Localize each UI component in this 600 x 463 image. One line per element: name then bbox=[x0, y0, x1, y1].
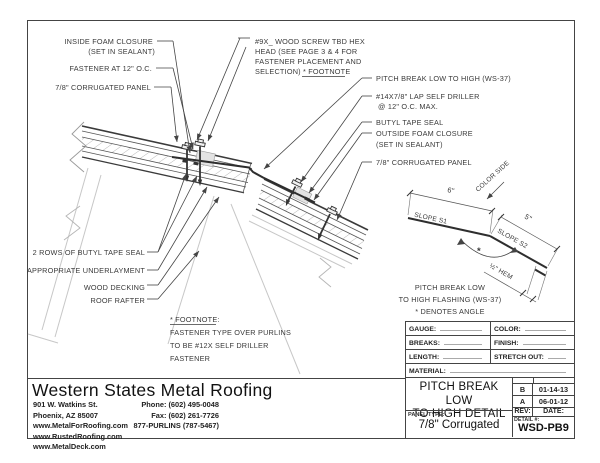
panel-type-value: 7/8" Corrugated bbox=[406, 419, 512, 431]
footnote-line1: FASTENER TYPE OVER PURLINS bbox=[170, 328, 291, 337]
gauge-blank bbox=[440, 329, 482, 331]
label-lap-driller: #14X7/8" LAP SELF DRILLER bbox=[376, 92, 480, 101]
label-wood-screw-footnote: * FOOTNOTE bbox=[303, 67, 350, 76]
revision-a: A bbox=[513, 396, 533, 407]
stretch-out-label: STRETCH OUT: bbox=[494, 354, 544, 361]
flashing-caption-3: * DENOTES ANGLE bbox=[415, 307, 485, 316]
label-roof-rafter: ROOF RAFTER bbox=[91, 296, 146, 305]
label-wood-screw-4: SELECTION) bbox=[255, 67, 301, 76]
label-wood-screw-1: #9X_ WOOD SCREW TBD HEX bbox=[255, 37, 365, 46]
date-label: DATE: bbox=[533, 408, 574, 416]
spec-row-breaks-finish: BREAKS: FINISH: bbox=[406, 336, 574, 350]
label-fastener-12oc: FASTENER AT 12" O.C. bbox=[69, 64, 152, 73]
right-corrugation-hatch bbox=[259, 190, 364, 249]
spec-row-material: MATERIAL: bbox=[406, 364, 574, 378]
label-color-side: COLOR SIDE bbox=[475, 159, 512, 193]
material-blank bbox=[450, 371, 566, 373]
website-3: www.MetalDeck.com bbox=[33, 442, 128, 453]
tollfree-number: 877-PURLINS (787-5467) bbox=[127, 421, 219, 432]
color-blank bbox=[525, 329, 566, 331]
label-corrugated-panel-left: 7/8" CORRUGATED PANEL bbox=[55, 83, 151, 92]
address-line-1: 901 W. Watkins St. bbox=[33, 400, 128, 411]
gauge-label: GAUGE: bbox=[409, 326, 436, 333]
detail-title-line1: PITCH BREAK LOW bbox=[406, 381, 512, 408]
left-break-symbol bbox=[70, 122, 86, 172]
label-inside-foam-closure-2: (SET IN SEALANT) bbox=[88, 47, 155, 56]
label-outside-foam-2: (SET IN SEALANT) bbox=[376, 140, 443, 149]
spec-row-gauge-color: GAUGE: COLOR: bbox=[406, 322, 574, 336]
label-hem: ½" HEM bbox=[488, 262, 514, 282]
revision-strip bbox=[513, 378, 574, 384]
rev-label: REV: bbox=[513, 408, 533, 416]
label-wood-screw-3: FASTENER PLACEMENT AND bbox=[255, 57, 361, 66]
leader-lines bbox=[147, 38, 372, 299]
flashing-caption-1: PITCH BREAK LOW bbox=[415, 283, 485, 292]
label-lap-driller-2: @ 12" O.C. MAX. bbox=[378, 102, 438, 111]
breaks-label: BREAKS: bbox=[409, 340, 440, 347]
label-outside-foam: OUTSIDE FOAM CLOSURE bbox=[376, 129, 473, 138]
material-label: MATERIAL: bbox=[409, 368, 446, 375]
detail-title-cell: PITCH BREAK LOW TO HIGH DETAIL PANEL TYP… bbox=[406, 378, 513, 437]
hem-fold bbox=[535, 270, 546, 276]
finish-label: FINISH: bbox=[494, 340, 519, 347]
revision-a-date: 06-01-12 bbox=[533, 396, 574, 407]
finish-blank bbox=[523, 343, 566, 345]
panel-type-cell: PANEL TYPE: 7/8" Corrugated bbox=[406, 410, 512, 437]
footnote-line3: FASTENER bbox=[170, 354, 210, 363]
phone-number: Phone: (602) 495-0048 bbox=[127, 400, 219, 411]
left-roof-assembly bbox=[70, 122, 252, 193]
drawing-sheet: INSIDE FOAM CLOSURE (SET IN SEALANT) FAS… bbox=[0, 0, 600, 463]
company-phones: Phone: (602) 495-0048 Fax: (602) 261-772… bbox=[127, 400, 219, 432]
spec-row-length-stretchout: LENGTH: STRETCH OUT: bbox=[406, 350, 574, 364]
length-label: LENGTH: bbox=[409, 354, 439, 361]
color-side-arrow bbox=[487, 182, 504, 199]
footnote-title: * FOOTNOTE: bbox=[170, 315, 220, 324]
length-blank bbox=[443, 357, 482, 359]
color-label: COLOR: bbox=[494, 326, 521, 333]
angle-arc bbox=[462, 241, 514, 257]
detail-number-value: WSD-PB9 bbox=[513, 422, 574, 434]
title-block: GAUGE: COLOR: BREAKS: FINISH: LENGTH: ST… bbox=[405, 321, 575, 439]
flashing-caption-2: TO HIGH FLASHING (WS-37) bbox=[399, 295, 502, 304]
breaks-blank bbox=[444, 343, 482, 345]
right-roof-assembly bbox=[256, 179, 368, 259]
address-line-2: Phoenix, AZ 85007 bbox=[33, 411, 128, 422]
dim-5in: 5" bbox=[523, 212, 534, 223]
revision-row-b: B 01-14-13 bbox=[513, 384, 574, 396]
label-inside-foam-closure: INSIDE FOAM CLOSURE bbox=[64, 37, 153, 46]
flashing-profile-detail: COLOR SIDE 6" 5" SLOPE S1 SLOPE S2 ½" HE… bbox=[399, 159, 560, 316]
label-wood-screw-2: HEAD (SEE PAGE 3 & 4 FOR bbox=[255, 47, 357, 56]
panel-type-label: PANEL TYPE: bbox=[408, 412, 444, 418]
revision-b-date: 01-14-13 bbox=[533, 384, 574, 395]
revision-b: B bbox=[513, 384, 533, 395]
fax-number: Fax: (602) 261-7726 bbox=[127, 411, 219, 422]
revision-table: B 01-14-13 A 06-01-12 REV: DATE: DETAIL … bbox=[513, 378, 574, 437]
revision-row-a: A 06-01-12 bbox=[513, 396, 574, 408]
label-wood-decking: WOOD DECKING bbox=[84, 283, 145, 292]
label-corrugated-panel-right: 7/8" CORRUGATED PANEL bbox=[376, 158, 472, 167]
stretch-out-blank bbox=[548, 357, 566, 359]
label-butyl-rows: 2 ROWS OF BUTYL TAPE SEAL bbox=[33, 248, 145, 257]
label-butyl-tape: BUTYL TAPE SEAL bbox=[376, 118, 443, 127]
footnote-line2: TO BE #12X SELF DRILLER bbox=[170, 341, 269, 350]
label-underlayment: APPROPRIATE UNDERLAYMENT bbox=[27, 266, 145, 275]
website-1: www.MetalForRoofing.com bbox=[33, 421, 128, 432]
revision-header-row: REV: DATE: bbox=[513, 408, 574, 417]
label-pitch-break: PITCH BREAK LOW TO HIGH (WS-37) bbox=[376, 74, 511, 83]
dim-6in: 6" bbox=[447, 185, 456, 195]
label-slope-s2: SLOPE S2 bbox=[496, 228, 529, 251]
company-address: 901 W. Watkins St. Phoenix, AZ 85007 www… bbox=[33, 400, 128, 453]
detail-number-cell: DETAIL #: WSD-PB9 bbox=[513, 417, 574, 437]
company-name: Western States Metal Roofing bbox=[32, 380, 273, 401]
website-2: www.RustedRoofing.com bbox=[33, 432, 128, 443]
angle-asterisk: * bbox=[477, 246, 481, 257]
company-block: Western States Metal Roofing 901 W. Watk… bbox=[27, 378, 405, 439]
